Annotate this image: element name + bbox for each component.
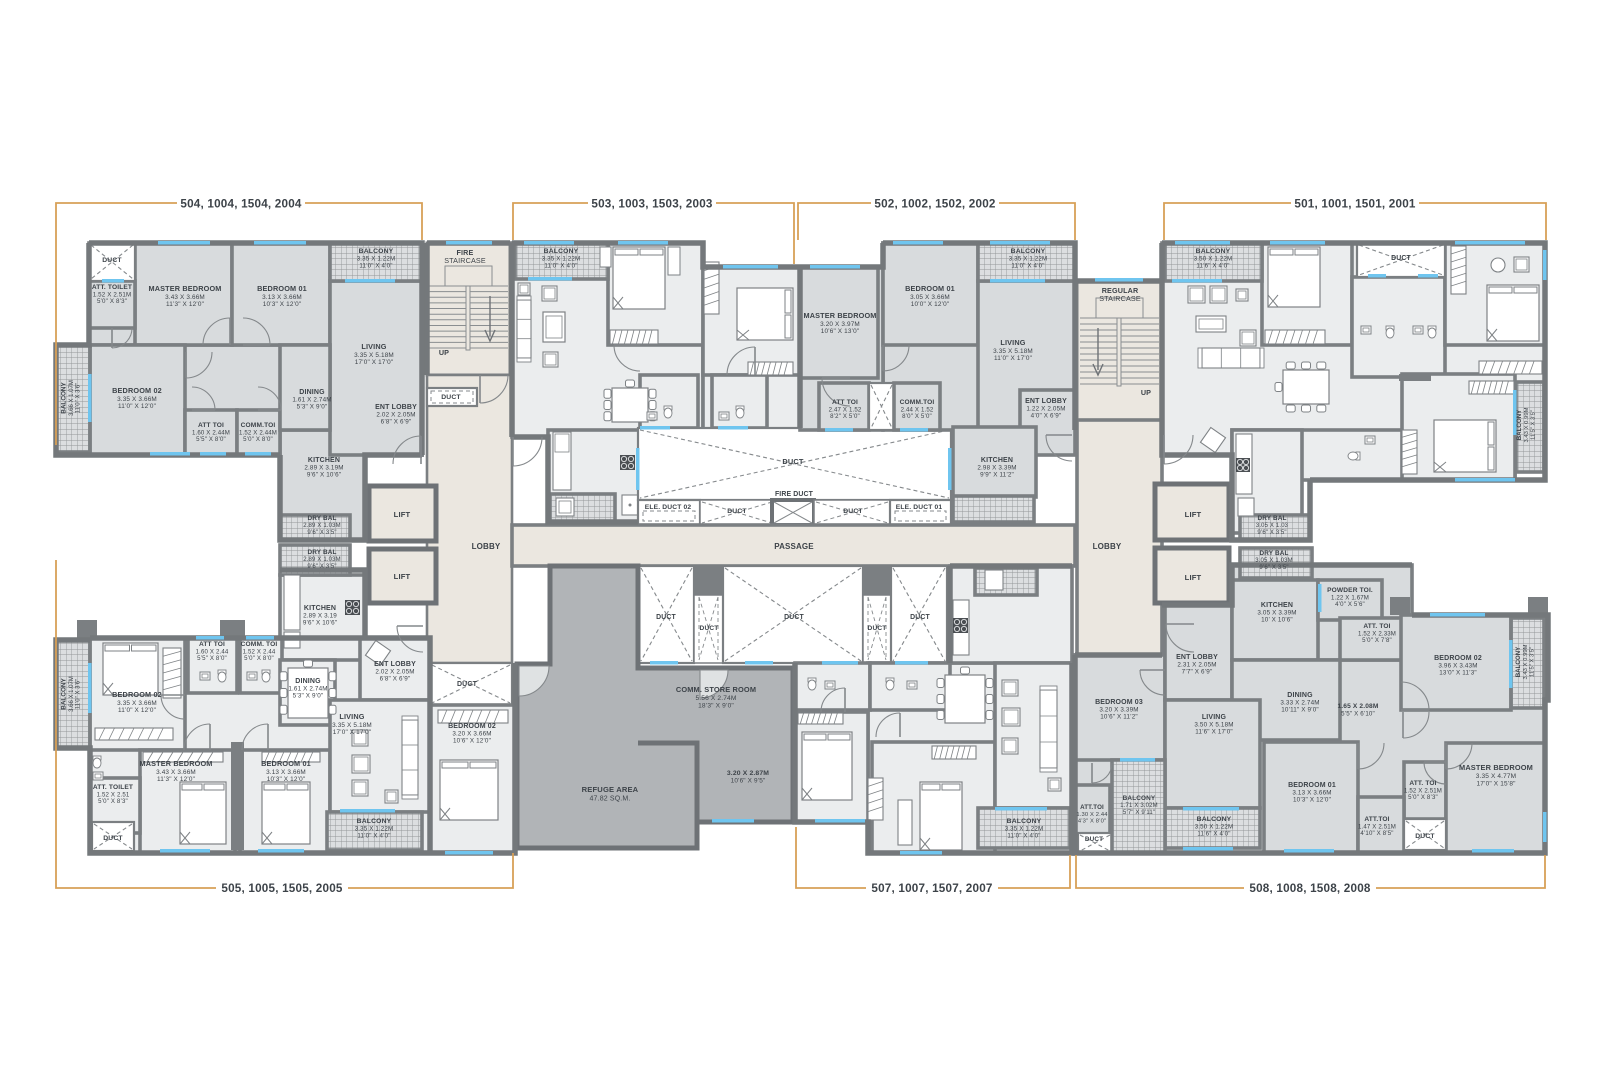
svg-text:DUCT: DUCT <box>868 625 887 632</box>
svg-text:2.89 X 3.19: 2.89 X 3.19 <box>303 613 337 620</box>
svg-text:LOBBY: LOBBY <box>1093 542 1122 551</box>
svg-text:3.43 X 0.99M: 3.43 X 0.99M <box>1523 644 1529 679</box>
svg-text:COMM. STORE ROOM: COMM. STORE ROOM <box>676 685 756 694</box>
svg-text:ATT. TOILET: ATT. TOILET <box>93 784 133 791</box>
svg-text:LIFT: LIFT <box>394 572 411 581</box>
svg-text:MASTER BEDROOM: MASTER BEDROOM <box>1459 763 1533 772</box>
svg-text:DINING: DINING <box>1287 692 1313 699</box>
svg-text:3.13 X 3.66M: 3.13 X 3.66M <box>1292 790 1331 797</box>
svg-text:DUCT: DUCT <box>1391 255 1411 262</box>
svg-text:1.22 X 2.05M: 1.22 X 2.05M <box>1026 406 1065 413</box>
svg-text:11’6" X 17’0": 11’6" X 17’0" <box>1195 729 1232 736</box>
svg-text:LIVING: LIVING <box>1202 714 1227 721</box>
svg-text:ENT LOBBY: ENT LOBBY <box>375 404 417 411</box>
svg-text:6’8" X 6’9": 6’8" X 6’9" <box>381 419 412 426</box>
svg-text:5’0" X 8’3": 5’0" X 8’3" <box>97 298 127 305</box>
svg-text:DINING: DINING <box>295 678 321 685</box>
svg-text:10’3" X 12’0": 10’3" X 12’0" <box>263 301 301 308</box>
svg-text:BALCONY: BALCONY <box>1011 248 1046 255</box>
svg-text:507, 1007, 1507, 2007: 507, 1007, 1507, 2007 <box>871 882 992 895</box>
svg-text:4’10" X 8’5": 4’10" X 8’5" <box>1360 830 1393 837</box>
svg-text:3.13 X 3.66M: 3.13 X 3.66M <box>266 769 306 776</box>
svg-text:4’3" X 8’0": 4’3" X 8’0" <box>1078 818 1106 824</box>
svg-text:18’3" X 9’0": 18’3" X 9’0" <box>698 702 734 709</box>
svg-text:5’0" X 8’3": 5’0" X 8’3" <box>1408 794 1438 801</box>
svg-text:10’6" X 12’0": 10’6" X 12’0" <box>453 738 491 745</box>
svg-text:5’5" X 8’0": 5’5" X 8’0" <box>196 436 226 443</box>
svg-text:DUCT: DUCT <box>1085 836 1103 843</box>
svg-text:LOBBY: LOBBY <box>472 542 501 551</box>
svg-text:ATT. TOILET: ATT. TOILET <box>92 284 132 291</box>
svg-text:11’3" X 12’0": 11’3" X 12’0" <box>157 776 195 783</box>
svg-text:3.35 X 5.18M: 3.35 X 5.18M <box>993 348 1033 355</box>
svg-text:2.02 X 2.05M: 2.02 X 2.05M <box>375 669 414 676</box>
svg-text:BALCONY: BALCONY <box>1197 816 1232 823</box>
svg-text:5’3" X 9’0": 5’3" X 9’0" <box>297 404 328 411</box>
svg-text:BALCONY: BALCONY <box>1515 646 1522 677</box>
svg-text:17’0" X 17’0": 17’0" X 17’0" <box>355 359 393 366</box>
svg-text:11’0" X 4’0": 11’0" X 4’0" <box>359 262 392 269</box>
svg-text:BEDROOM 02: BEDROOM 02 <box>448 723 496 730</box>
svg-text:2.89 X 1.03M: 2.89 X 1.03M <box>303 557 341 563</box>
svg-text:1.71 X 3.02M: 1.71 X 3.02M <box>1120 803 1158 809</box>
svg-text:10’3" X 12’0": 10’3" X 12’0" <box>267 776 305 783</box>
svg-text:1.61 X 2.74M: 1.61 X 2.74M <box>292 397 331 404</box>
svg-text:DUCT: DUCT <box>457 681 478 688</box>
svg-text:MASTER BEDROOM: MASTER BEDROOM <box>803 311 876 320</box>
svg-text:BEDROOM 01: BEDROOM 01 <box>261 759 311 768</box>
svg-text:3.20 X 2.87M: 3.20 X 2.87M <box>727 770 769 777</box>
svg-text:3.96 X 3.43M: 3.96 X 3.43M <box>1438 663 1477 670</box>
svg-text:11’0" X 3’6": 11’0" X 3’6" <box>76 679 82 710</box>
svg-text:BALCONY: BALCONY <box>1196 248 1231 255</box>
svg-text:11’6" X 4’0": 11’6" X 4’0" <box>1196 262 1229 269</box>
svg-text:COMM. TOI: COMM. TOI <box>241 641 278 648</box>
svg-text:9’6" X 10’6": 9’6" X 10’6" <box>307 472 341 479</box>
svg-text:5.56 X 2.74M: 5.56 X 2.74M <box>695 695 736 702</box>
svg-text:BEDROOM 03: BEDROOM 03 <box>1095 699 1143 706</box>
svg-text:501, 1001, 1501, 2001: 501, 1001, 1501, 2001 <box>1294 198 1415 211</box>
svg-text:LIVING: LIVING <box>1000 338 1025 347</box>
svg-text:3.20 X 3.97M: 3.20 X 3.97M <box>820 321 860 328</box>
svg-text:DUCT: DUCT <box>103 835 123 842</box>
svg-text:2.31 X 2.05M: 2.31 X 2.05M <box>1177 662 1216 669</box>
svg-text:REFUGE AREA: REFUGE AREA <box>582 785 639 794</box>
svg-text:ENT LOBBY: ENT LOBBY <box>1025 398 1067 405</box>
svg-text:2.98 X 3.39M: 2.98 X 3.39M <box>977 465 1016 472</box>
svg-text:5’0" X 8’3": 5’0" X 8’3" <box>98 798 128 805</box>
svg-text:UP: UP <box>439 348 449 357</box>
svg-text:1.61 X 2.74M: 1.61 X 2.74M <box>288 686 327 693</box>
svg-text:6’8" X 6’9": 6’8" X 6’9" <box>380 676 411 683</box>
svg-text:BEDROOM 01: BEDROOM 01 <box>905 284 955 293</box>
svg-text:POWDER TOI.: POWDER TOI. <box>1327 587 1373 594</box>
svg-text:BALCONY: BALCONY <box>1007 818 1042 825</box>
svg-text:DUCT: DUCT <box>700 625 719 632</box>
svg-text:DUCT: DUCT <box>441 394 461 401</box>
svg-text:5’0" X 7’8": 5’0" X 7’8" <box>1362 637 1392 644</box>
svg-text:9’6" X 3’5": 9’6" X 3’5" <box>1259 565 1288 571</box>
svg-text:ATT. TOI: ATT. TOI <box>1409 780 1436 787</box>
svg-text:BALCONY: BALCONY <box>357 818 392 825</box>
svg-text:17’0" X 15’8": 17’0" X 15’8" <box>1476 780 1516 787</box>
svg-text:DRY BAL: DRY BAL <box>307 515 336 522</box>
svg-text:COMM.TOI: COMM.TOI <box>241 422 276 429</box>
svg-text:504, 1004, 1504, 2004: 504, 1004, 1504, 2004 <box>180 198 301 211</box>
svg-text:LIVING: LIVING <box>339 712 364 721</box>
svg-text:BALCONY: BALCONY <box>61 381 68 413</box>
svg-text:11’0" X 12’0": 11’0" X 12’0" <box>118 403 156 410</box>
svg-text:10’11" X 9’0": 10’11" X 9’0" <box>1281 707 1318 714</box>
svg-text:DINING: DINING <box>299 389 325 396</box>
svg-text:BALCONY: BALCONY <box>1123 795 1156 802</box>
svg-text:502, 1002, 1502, 2002: 502, 1002, 1502, 2002 <box>874 198 995 211</box>
svg-text:10’6" X 11’2": 10’6" X 11’2" <box>1100 714 1137 721</box>
svg-text:17’0" X 17’0": 17’0" X 17’0" <box>333 729 371 736</box>
svg-text:9’6" X 3’5": 9’6" X 3’5" <box>1257 530 1286 536</box>
svg-text:BEDROOM 01: BEDROOM 01 <box>257 284 307 293</box>
svg-text:3.05 X 3.66M: 3.05 X 3.66M <box>910 294 950 301</box>
svg-text:3.43 X 3.66M: 3.43 X 3.66M <box>156 769 196 776</box>
svg-text:BEDROOM 02: BEDROOM 02 <box>1434 655 1482 662</box>
svg-text:2.89 X 3.19M: 2.89 X 3.19M <box>304 465 343 472</box>
svg-text:4’0" X 6’9": 4’0" X 6’9" <box>1031 413 1062 420</box>
svg-text:MASTER BEDROOM: MASTER BEDROOM <box>139 759 212 768</box>
svg-text:LIFT: LIFT <box>1185 573 1202 582</box>
svg-text:3.20 X 3.39M: 3.20 X 3.39M <box>1099 707 1138 714</box>
svg-text:3.35 X 3.66M: 3.35 X 3.66M <box>117 700 157 707</box>
svg-text:ELE. DUCT 01: ELE. DUCT 01 <box>896 504 943 511</box>
svg-text:ATT.TOI: ATT.TOI <box>1364 816 1389 823</box>
svg-text:9’6" X 10’6": 9’6" X 10’6" <box>303 620 337 627</box>
svg-text:LIFT: LIFT <box>1185 510 1202 519</box>
svg-text:5’7" X 9’11": 5’7" X 9’11" <box>1123 810 1155 816</box>
svg-text:ENT LOBBY: ENT LOBBY <box>1176 654 1218 661</box>
svg-text:DUCT: DUCT <box>1415 833 1435 840</box>
svg-text:DRY BAL: DRY BAL <box>307 549 336 556</box>
svg-text:STAIRCASE: STAIRCASE <box>1099 294 1141 303</box>
svg-text:11’0" X 17’0": 11’0" X 17’0" <box>994 355 1032 362</box>
svg-text:BALCONY: BALCONY <box>61 677 68 709</box>
svg-text:ATT. TOI: ATT. TOI <box>1363 623 1390 630</box>
svg-text:BEDROOM 01: BEDROOM 01 <box>1288 782 1336 789</box>
svg-text:503, 1003, 1503, 2003: 503, 1003, 1503, 2003 <box>591 198 712 211</box>
svg-text:ELE. DUCT 02: ELE. DUCT 02 <box>645 504 692 511</box>
svg-text:5’0" X 8’0": 5’0" X 8’0" <box>243 436 273 443</box>
svg-text:3.05 X 3.39M: 3.05 X 3.39M <box>1257 610 1296 617</box>
svg-text:3.43 X 0.99M: 3.43 X 0.99M <box>1524 407 1530 442</box>
svg-text:3.35 X 3.66M: 3.35 X 3.66M <box>117 396 157 403</box>
svg-text:LIVING: LIVING <box>361 342 386 351</box>
svg-text:1.65 X 2.08M: 1.65 X 2.08M <box>1337 703 1378 710</box>
svg-text:DUCT: DUCT <box>782 457 803 466</box>
svg-text:8’2" X 5’0": 8’2" X 5’0" <box>830 413 860 420</box>
svg-text:3.50 X 5.18M: 3.50 X 5.18M <box>1194 722 1233 729</box>
svg-text:UP: UP <box>1141 388 1151 397</box>
svg-text:DUCT: DUCT <box>102 257 122 264</box>
svg-text:10’0" X 12’0": 10’0" X 12’0" <box>911 301 949 308</box>
svg-text:505, 1005, 1505, 2005: 505, 1005, 1505, 2005 <box>221 882 342 895</box>
svg-text:DUCT: DUCT <box>656 614 676 621</box>
svg-text:9’9" X 11’2": 9’9" X 11’2" <box>980 472 1014 479</box>
svg-text:1.30 X 2.44: 1.30 X 2.44 <box>1076 812 1108 818</box>
svg-text:9’6" X 3’5": 9’6" X 3’5" <box>307 564 336 570</box>
svg-text:2.89 X 1.03M: 2.89 X 1.03M <box>303 523 341 529</box>
svg-text:508, 1008, 1508, 2008: 508, 1008, 1508, 2008 <box>1249 882 1370 895</box>
svg-text:KITCHEN: KITCHEN <box>308 457 340 464</box>
svg-text:3.35 X 4.77M: 3.35 X 4.77M <box>1476 773 1516 780</box>
svg-text:BEDROOM 02: BEDROOM 02 <box>112 690 162 699</box>
svg-text:11’0" X 4’0": 11’0" X 4’0" <box>544 262 577 269</box>
svg-text:11’5" X 3’5": 11’5" X 3’5" <box>1531 410 1537 440</box>
svg-text:ATT TOI: ATT TOI <box>198 422 224 429</box>
svg-text:4’0" X 5’6": 4’0" X 5’6" <box>1335 601 1365 608</box>
svg-text:KITCHEN: KITCHEN <box>981 457 1013 464</box>
svg-text:3.66 X 1.07M: 3.66 X 1.07M <box>69 676 75 712</box>
svg-text:BEDROOM 02: BEDROOM 02 <box>112 386 162 395</box>
svg-text:11’6" X 4’0": 11’6" X 4’0" <box>1197 830 1230 837</box>
svg-text:11’0" X 12’0": 11’0" X 12’0" <box>118 707 156 714</box>
svg-text:3.33 X 2.74M: 3.33 X 2.74M <box>1280 700 1319 707</box>
svg-text:BALCONY: BALCONY <box>359 248 394 255</box>
svg-text:3.66 X 1.07M: 3.66 X 1.07M <box>69 380 75 416</box>
svg-text:COMM.TOI: COMM.TOI <box>900 399 935 406</box>
svg-text:5’5" X 6’10": 5’5" X 6’10" <box>1341 710 1375 717</box>
svg-text:10’ X 10’6": 10’ X 10’6" <box>1261 617 1293 624</box>
svg-text:ATT.TOI: ATT.TOI <box>1080 804 1104 811</box>
svg-text:LIFT: LIFT <box>394 510 411 519</box>
svg-text:DUCT: DUCT <box>910 614 930 621</box>
svg-text:10’6" X 9’5": 10’6" X 9’5" <box>731 778 766 785</box>
svg-text:DUCT: DUCT <box>784 614 804 621</box>
svg-text:BALCONY: BALCONY <box>544 248 579 255</box>
svg-text:5’3" X 9’0": 5’3" X 9’0" <box>293 693 324 700</box>
svg-text:3.05 X 1.03M: 3.05 X 1.03M <box>1255 558 1293 564</box>
svg-text:ATT TOI: ATT TOI <box>199 641 225 648</box>
svg-text:MASTER BEDROOM: MASTER BEDROOM <box>148 284 221 293</box>
svg-text:KITCHEN: KITCHEN <box>1261 602 1293 609</box>
svg-text:5’0" X 8’0": 5’0" X 8’0" <box>244 655 274 662</box>
svg-text:2.02 X 2.05M: 2.02 X 2.05M <box>376 412 415 419</box>
svg-text:9’6" X 3’5": 9’6" X 3’5" <box>307 530 336 536</box>
svg-text:11’0" X 4’0": 11’0" X 4’0" <box>1007 832 1040 839</box>
svg-text:3.13 X 3.66M: 3.13 X 3.66M <box>262 294 302 301</box>
svg-text:3.35 X 5.18M: 3.35 X 5.18M <box>354 352 394 359</box>
svg-text:5’5" X 8’0": 5’5" X 8’0" <box>197 655 227 662</box>
svg-text:10’6" X 13’0": 10’6" X 13’0" <box>821 328 859 335</box>
svg-text:47.82 SQ.M.: 47.82 SQ.M. <box>590 795 631 802</box>
svg-text:11’0" X 4’0": 11’0" X 4’0" <box>1011 262 1044 269</box>
svg-text:8’0" X 5’0": 8’0" X 5’0" <box>902 413 932 420</box>
svg-text:7’7" X 6’9": 7’7" X 6’9" <box>1182 669 1213 676</box>
svg-text:3.43 X 3.66M: 3.43 X 3.66M <box>165 294 205 301</box>
svg-text:ATT TOI: ATT TOI <box>832 399 858 406</box>
svg-text:11’5" X 3’5": 11’5" X 3’5" <box>1530 647 1536 677</box>
svg-text:KITCHEN: KITCHEN <box>304 605 336 612</box>
svg-text:13’0" X 11’3": 13’0" X 11’3" <box>1439 670 1476 677</box>
svg-text:DRY BAL: DRY BAL <box>1259 550 1288 557</box>
svg-text:BALCONY: BALCONY <box>1516 409 1523 440</box>
svg-text:FIRE DUCT: FIRE DUCT <box>775 491 814 498</box>
svg-text:DUCT: DUCT <box>727 508 747 515</box>
svg-text:ENT LOBBY: ENT LOBBY <box>374 661 416 668</box>
svg-text:3.35 X 5.18M: 3.35 X 5.18M <box>332 722 372 729</box>
svg-text:PASSAGE: PASSAGE <box>774 542 814 551</box>
svg-text:11’0" X 4’0": 11’0" X 4’0" <box>357 832 390 839</box>
svg-text:3.20 X 3.66M: 3.20 X 3.66M <box>452 731 491 738</box>
svg-text:11’0" X 3’6": 11’0" X 3’6" <box>76 383 82 414</box>
svg-text:11’3" X 12’0": 11’3" X 12’0" <box>166 301 204 308</box>
svg-text:3.05 X 1.03: 3.05 X 1.03 <box>1256 523 1289 529</box>
svg-text:10’3" X 12’0": 10’3" X 12’0" <box>1293 797 1331 804</box>
svg-text:DUCT: DUCT <box>843 508 863 515</box>
svg-text:STAIRCASE: STAIRCASE <box>444 256 486 265</box>
svg-text:DRY BAL: DRY BAL <box>1257 515 1286 522</box>
